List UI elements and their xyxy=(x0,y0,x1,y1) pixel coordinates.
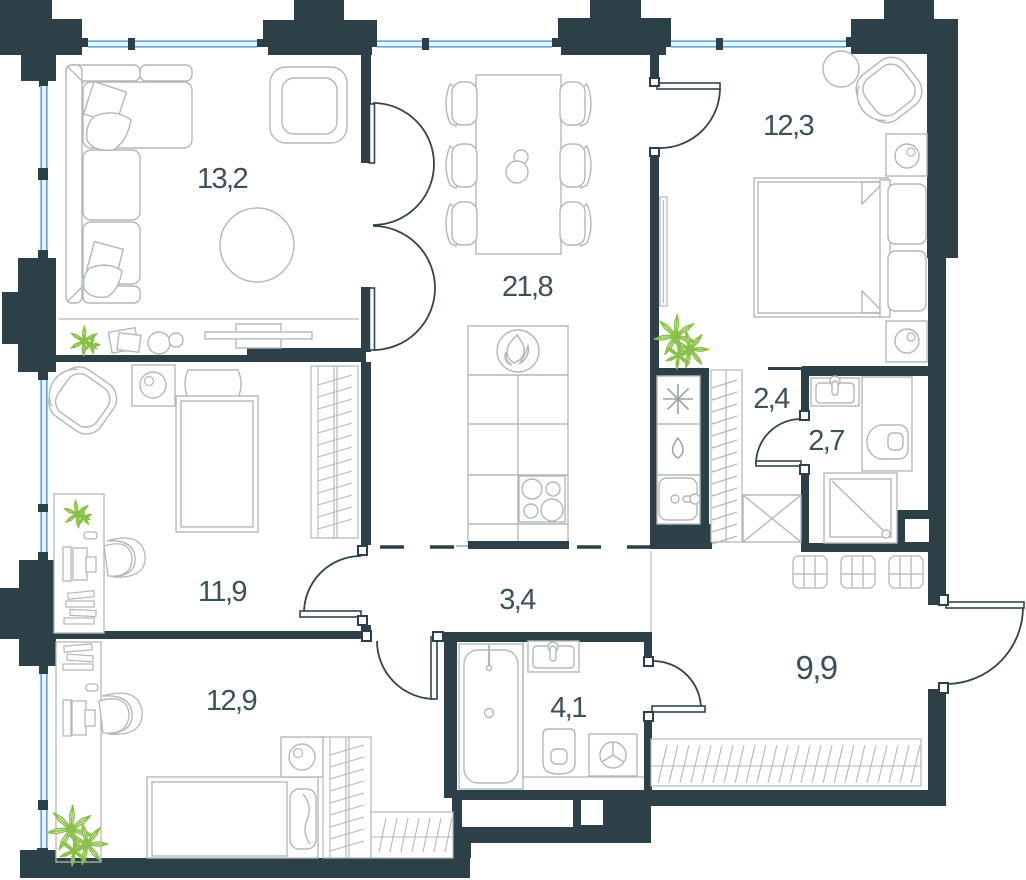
svg-text:4,1: 4,1 xyxy=(550,692,586,724)
svg-text:2,7: 2,7 xyxy=(808,425,844,457)
svg-text:21,8: 21,8 xyxy=(502,271,553,303)
svg-text:9,9: 9,9 xyxy=(795,649,836,686)
svg-text:12,3: 12,3 xyxy=(763,110,814,142)
svg-text:11,9: 11,9 xyxy=(198,576,246,608)
svg-text:2,4: 2,4 xyxy=(753,383,790,415)
svg-text:3,4: 3,4 xyxy=(499,584,536,616)
svg-text:12,9: 12,9 xyxy=(206,685,257,717)
svg-text:13,2: 13,2 xyxy=(197,163,248,195)
